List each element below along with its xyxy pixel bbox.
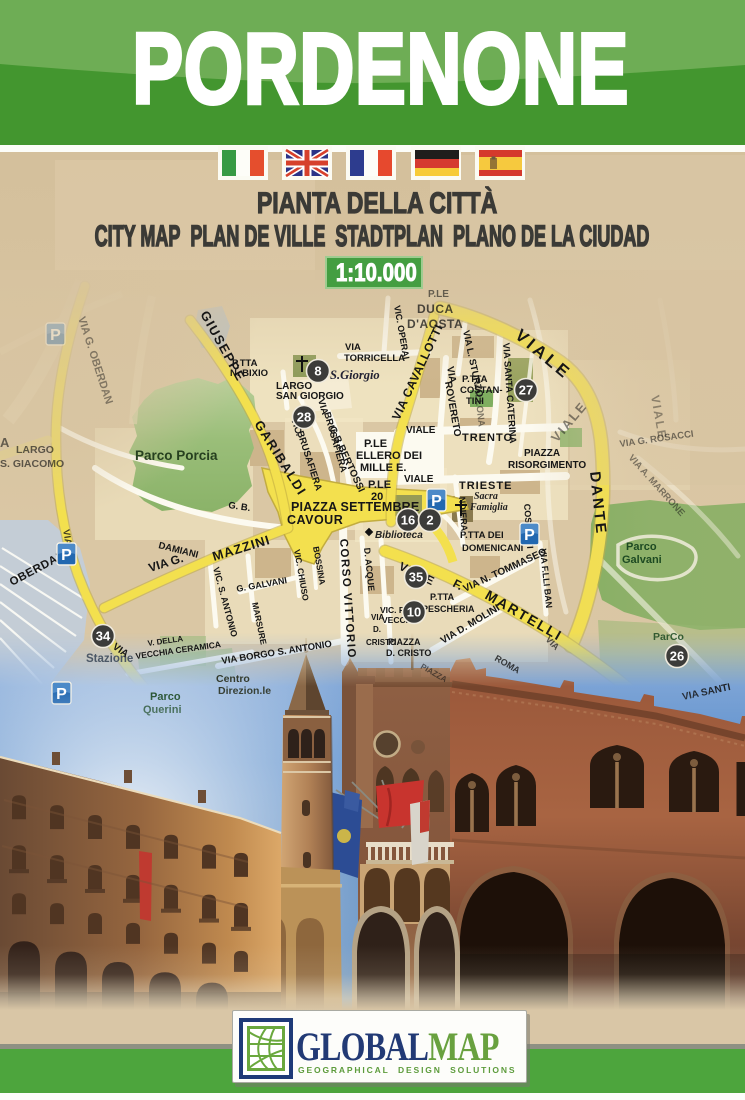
svg-text:LARGO: LARGO — [16, 444, 54, 456]
svg-text:Galvani: Galvani — [622, 554, 662, 566]
svg-text:VIC. OPERAI: VIC. OPERAI — [392, 305, 411, 360]
svg-text:SAN GIORGIO: SAN GIORGIO — [276, 391, 344, 402]
svg-text:VIC. S. ANTONIO: VIC. S. ANTONIO — [211, 566, 239, 638]
svg-text:VIA: VIA — [371, 613, 385, 622]
svg-text:G. GALVANI: G. GALVANI — [236, 575, 288, 594]
svg-text:D'AOSTA: D'AOSTA — [407, 317, 463, 331]
svg-text:G. B.: G. B. — [228, 500, 251, 514]
svg-text:P: P — [56, 686, 67, 703]
svg-text:Querini: Querini — [143, 704, 182, 716]
svg-text:ELLERO DEI: ELLERO DEI — [356, 450, 422, 462]
svg-text:Parco Porcia: Parco Porcia — [135, 448, 218, 463]
svg-text:MAZZINI: MAZZINI — [210, 532, 271, 564]
svg-text:BOSSINA: BOSSINA — [311, 546, 328, 586]
svg-text:MARSURE: MARSURE — [250, 601, 269, 645]
svg-text:P.LE: P.LE — [364, 438, 387, 450]
svg-text:A: A — [0, 435, 10, 450]
svg-text:VIALE: VIALE — [406, 425, 436, 436]
svg-text:VIA: VIA — [345, 342, 361, 353]
svg-text:Sacra: Sacra — [474, 491, 498, 502]
svg-text:2: 2 — [426, 513, 433, 528]
svg-text:P: P — [50, 327, 61, 344]
svg-text:35: 35 — [409, 570, 423, 585]
svg-text:26: 26 — [670, 649, 684, 664]
svg-text:VIALE: VIALE — [548, 398, 591, 445]
svg-text:MILLE E.: MILLE E. — [360, 462, 406, 474]
svg-text:TRENTO: TRENTO — [462, 432, 513, 444]
svg-text:CAVOUR: CAVOUR — [287, 513, 343, 527]
svg-text:28: 28 — [297, 410, 311, 425]
svg-text:P.TTA: P.TTA — [430, 592, 455, 602]
svg-text:S. GIACOMO: S. GIACOMO — [0, 458, 64, 470]
svg-text:Famiglia: Famiglia — [469, 502, 508, 513]
svg-text:VIALE: VIALE — [511, 326, 575, 384]
svg-text:VIA BORGO S. ANTONIO: VIA BORGO S. ANTONIO — [221, 639, 333, 667]
svg-text:27: 27 — [519, 383, 533, 398]
svg-text:TORRICELLA: TORRICELLA — [344, 353, 405, 364]
svg-text:D. ACQUE: D. ACQUE — [362, 547, 377, 591]
svg-text:Parco: Parco — [626, 541, 657, 553]
svg-text:P: P — [431, 493, 442, 510]
svg-text:N. BIXIO: N. BIXIO — [230, 368, 268, 379]
svg-text:VIA G. OBERDAN: VIA G. OBERDAN — [75, 315, 115, 406]
svg-text:8: 8 — [314, 364, 321, 379]
svg-text:VIA A. MARRONE: VIA A. MARRONE — [626, 453, 687, 519]
svg-text:VIA SANTI: VIA SANTI — [681, 682, 732, 703]
svg-text:Centro: Centro — [216, 673, 250, 685]
svg-text:PESCHERIA: PESCHERIA — [422, 604, 475, 614]
svg-text:P.LE: P.LE — [368, 479, 391, 491]
svg-text:P.LE: P.LE — [428, 289, 449, 300]
svg-text:VIC. CHIUSO: VIC. CHIUSO — [292, 549, 311, 602]
svg-text:PIAZZA: PIAZZA — [419, 662, 449, 684]
svg-text:S.Giorgio: S.Giorgio — [330, 368, 380, 382]
svg-text:NDIERA: NDIERA — [457, 496, 469, 532]
svg-text:16: 16 — [401, 513, 415, 528]
svg-text:Parco: Parco — [150, 691, 181, 703]
svg-text:CORSO VITTORIO: CORSO VITTORIO — [337, 538, 357, 659]
svg-text:Direzion.le: Direzion.le — [218, 685, 271, 697]
svg-text:D. CRISTO: D. CRISTO — [386, 648, 431, 658]
svg-text:10: 10 — [407, 605, 421, 620]
svg-text:P: P — [61, 547, 72, 564]
svg-text:CRISTO: CRISTO — [366, 638, 396, 647]
svg-text:VIALE: VIALE — [404, 474, 434, 485]
svg-text:P: P — [524, 527, 535, 544]
svg-text:DOMENICANI: DOMENICANI — [462, 543, 523, 554]
svg-text:P.TTA DEI: P.TTA DEI — [460, 530, 504, 541]
svg-text:DUCA: DUCA — [417, 302, 454, 316]
svg-text:DANTE: DANTE — [586, 471, 610, 537]
svg-text:ParCo: ParCo — [653, 631, 684, 643]
svg-text:ROMA: ROMA — [493, 653, 522, 676]
svg-text:Biblioteca: Biblioteca — [375, 530, 423, 541]
svg-text:34: 34 — [96, 629, 111, 644]
svg-text:RISORGIMENTO: RISORGIMENTO — [508, 460, 586, 471]
svg-text:PIAZZA: PIAZZA — [524, 448, 560, 459]
svg-text:D.: D. — [373, 625, 381, 634]
